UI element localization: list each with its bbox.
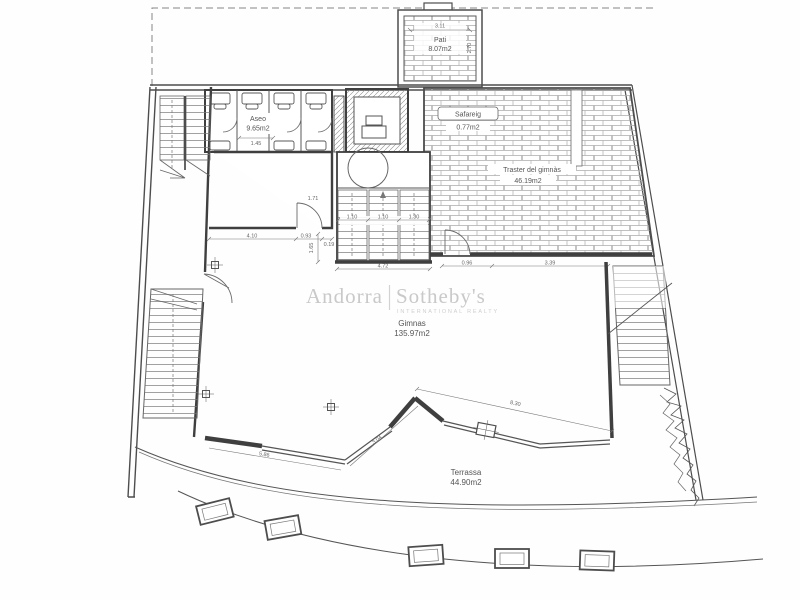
pass-a-dim: 0.93 bbox=[301, 234, 312, 240]
gym-right-wall bbox=[606, 262, 612, 438]
elevator bbox=[346, 89, 408, 152]
gimnas-area-label: 135.97m2 bbox=[394, 329, 430, 338]
right-exterior-stair bbox=[608, 266, 699, 506]
aseo-name-label: Aseo bbox=[250, 116, 266, 123]
planter bbox=[408, 545, 443, 566]
terrace-dim-line-a bbox=[209, 448, 341, 470]
pati-name-label: Pati bbox=[434, 37, 447, 44]
elevator-machine bbox=[362, 126, 386, 138]
floor-plan-sheet: 3.11 Pati 8.07m2 2.70 Safareig 0.77m2 Tr… bbox=[0, 0, 800, 600]
pati-depth-dim-group: 2.70 bbox=[467, 43, 473, 54]
traster-width-dim: 3.39 bbox=[545, 261, 556, 267]
corridor-dim: 0.96 bbox=[462, 261, 473, 267]
stair-side-dim-group: 1.65 bbox=[309, 243, 315, 254]
watermark-brand-right: Sotheby's bbox=[396, 284, 486, 308]
column-marker bbox=[198, 386, 214, 402]
facade-wall-segment-1 bbox=[205, 438, 262, 446]
lower-terrace-band bbox=[135, 447, 763, 571]
facade-railing-1 bbox=[262, 446, 345, 464]
terrace-dim-a: 5.86 bbox=[258, 451, 270, 459]
stair-width-dim: 4.72 bbox=[378, 264, 389, 270]
pati-area-label: 8.07m2 bbox=[428, 46, 451, 53]
column-marker bbox=[207, 257, 223, 273]
terrace-dim-line-b bbox=[350, 406, 418, 466]
facade-railing-4 bbox=[540, 440, 610, 448]
duct-shaft bbox=[334, 96, 344, 152]
terrassa-area-label: 44.90m2 bbox=[450, 478, 482, 487]
traster-partition-wall bbox=[571, 90, 582, 166]
terrassa-name-label: Terrassa bbox=[451, 468, 482, 477]
watermark: Andorra Sotheby's INTERNATIONAL REALTY bbox=[306, 284, 499, 315]
room-walls bbox=[209, 152, 332, 228]
column-marker bbox=[323, 399, 339, 415]
planter bbox=[580, 550, 615, 570]
room-width-dim: 4.10 bbox=[247, 234, 258, 240]
aseo-area-label: 9.65m2 bbox=[246, 126, 269, 133]
u-stair-flight-right bbox=[186, 96, 210, 160]
left-staircase-lower bbox=[143, 289, 203, 418]
stair-side-dim: 1.65 bbox=[309, 243, 315, 254]
gimnas-name-label: Gimnas bbox=[398, 319, 426, 328]
aseo-block: Aseo 9.65m2 1.45 bbox=[205, 90, 344, 152]
terrace-facade: 5.86 3.04 8.30 Terrassa 44.90m2 bbox=[205, 387, 614, 487]
terrace-dim-c-group: 8.30 bbox=[509, 400, 521, 408]
terrace-dim-b-group: 3.04 bbox=[371, 435, 383, 446]
planter bbox=[196, 498, 234, 525]
safareig-name-label: Safareig bbox=[455, 112, 481, 119]
safareig-area-label: 0.77m2 bbox=[456, 125, 479, 132]
terrace-dim-c: 8.30 bbox=[509, 400, 521, 408]
gym-entry-door bbox=[204, 274, 232, 303]
pati-structure: 3.11 Pati 8.07m2 2.70 bbox=[398, 3, 482, 87]
aseo-width-dim: 1.45 bbox=[251, 141, 262, 147]
lower-stair-flight bbox=[143, 289, 203, 418]
storage-room: 1.71 4.10 0.93 0.19 bbox=[207, 152, 334, 248]
facade-railing-2 bbox=[345, 427, 392, 464]
door-width-dim: 1.71 bbox=[308, 196, 319, 202]
band-upper-curve-inner bbox=[139, 452, 757, 509]
elevator-counterweight bbox=[366, 116, 382, 125]
pati-depth-dim: 2.70 bbox=[467, 43, 473, 54]
traster-name-label: Traster del gimnàs bbox=[503, 167, 561, 174]
watermark-sub: INTERNATIONAL REALTY bbox=[397, 309, 499, 315]
rock-hatch-2 bbox=[660, 395, 686, 491]
flight3-dim: 1.30 bbox=[409, 215, 420, 221]
stair-cut-fade bbox=[613, 266, 666, 308]
facade-wall-apex bbox=[390, 398, 443, 427]
band-upper-curve bbox=[135, 447, 757, 505]
column-markers bbox=[198, 257, 339, 415]
watermark-brand-left: Andorra bbox=[306, 284, 383, 308]
terrace-dim-line-c bbox=[415, 387, 614, 433]
terrace-dim-b: 3.04 bbox=[371, 435, 383, 446]
pass-b-dim: 0.19 bbox=[324, 242, 335, 248]
flight1-dim: 1.10 bbox=[347, 215, 358, 221]
facade-column bbox=[471, 418, 500, 443]
traster-area-label: 46.19m2 bbox=[514, 178, 541, 185]
terrace-dim-a-group: 5.86 bbox=[258, 451, 270, 459]
flight2-dim: 1.10 bbox=[378, 215, 389, 221]
room-dim-line bbox=[207, 237, 334, 241]
pati-width-dim: 3.11 bbox=[435, 24, 445, 30]
planter bbox=[495, 549, 529, 568]
planter bbox=[265, 515, 302, 540]
traster-area: Safareig 0.77m2 Traster del gimnàs 46.19… bbox=[424, 88, 654, 268]
floor-plan-drawing: 3.11 Pati 8.07m2 2.70 Safareig 0.77m2 Tr… bbox=[0, 0, 800, 600]
stair-side-dim-line bbox=[316, 232, 320, 264]
